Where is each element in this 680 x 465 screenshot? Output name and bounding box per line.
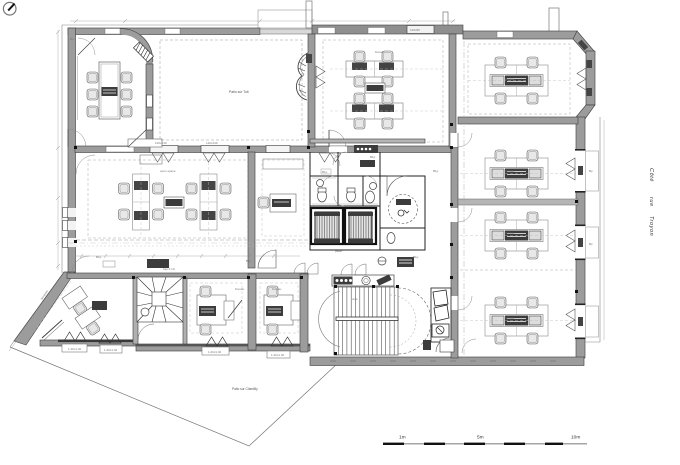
svg-text:open space: open space <box>160 169 176 173</box>
svg-text:5m: 5m <box>477 435 484 441</box>
svg-text:palier: palier <box>335 249 342 253</box>
svg-text:B1p: B1p <box>96 255 102 259</box>
svg-text:120x140: 120x140 <box>155 141 167 145</box>
svg-text:B1p: B1p <box>413 255 419 259</box>
svg-text:bureau: bureau <box>505 169 515 173</box>
svg-text:B1p: B1p <box>433 169 439 173</box>
svg-text:1.20x1.40: 1.20x1.40 <box>271 353 285 357</box>
svg-text:1.20x1.40: 1.20x1.40 <box>104 348 118 352</box>
svg-text:Bp: Bp <box>589 169 593 173</box>
svg-text:10m: 10m <box>571 435 580 441</box>
svg-text:Bp: Bp <box>70 37 74 41</box>
svg-text:Patio sur Chantilly: Patio sur Chantilly <box>232 387 258 391</box>
svg-text:1m: 1m <box>399 435 406 441</box>
svg-text:Bp: Bp <box>589 242 593 246</box>
svg-text:bureau: bureau <box>235 287 245 291</box>
svg-text:120x95: 120x95 <box>410 28 420 32</box>
svg-text:1.20x1.40: 1.20x1.40 <box>208 350 222 354</box>
svg-text:B1p: B1p <box>246 259 252 263</box>
svg-text:bureau: bureau <box>505 77 515 81</box>
svg-text:bureau: bureau <box>505 316 515 320</box>
svg-text:B1p: B1p <box>370 155 376 159</box>
svg-text:120x140: 120x140 <box>206 141 218 145</box>
svg-text:B1p: B1p <box>322 170 328 174</box>
svg-text:bureau: bureau <box>375 50 385 54</box>
svg-text:Patio sur Toit: Patio sur Toit <box>229 90 249 94</box>
svg-text:bureau: bureau <box>272 287 282 291</box>
svg-text:vide: vide <box>352 297 358 301</box>
svg-text:bureau: bureau <box>505 231 515 235</box>
svg-text:Troyon: Troyon <box>648 216 654 236</box>
svg-text:rue: rue <box>648 197 654 207</box>
svg-text:hsp 2.10: hsp 2.10 <box>163 267 175 271</box>
svg-text:1.20x1.40: 1.20x1.40 <box>68 347 82 351</box>
svg-text:Côté: Côté <box>648 168 654 182</box>
